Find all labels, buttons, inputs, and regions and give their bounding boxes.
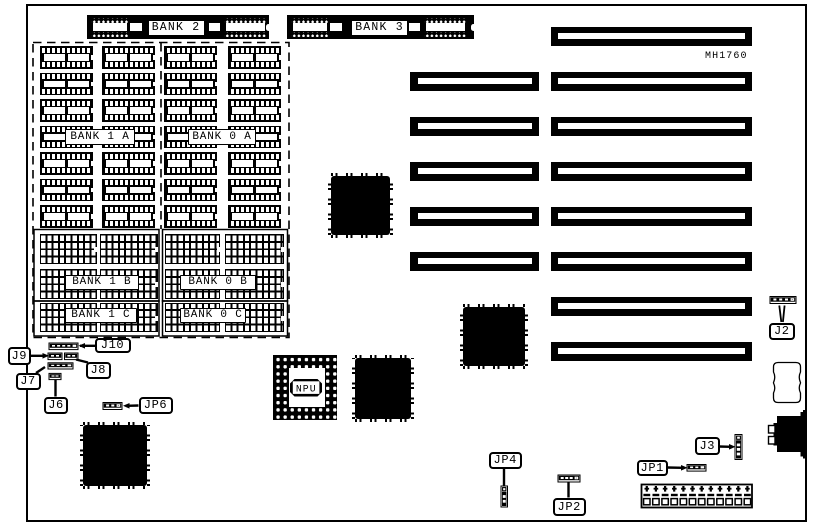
svg-text:NPU: NPU — [296, 384, 317, 395]
